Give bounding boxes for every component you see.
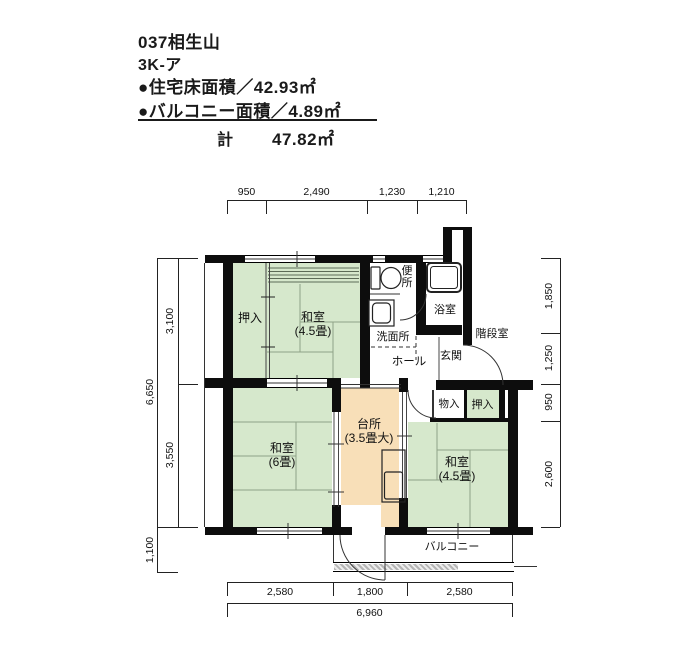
bath-bottom-wall <box>416 325 462 335</box>
header-underline <box>138 119 377 121</box>
dim-top-1210: 1,210 <box>417 186 466 198</box>
dim-top-line <box>227 200 466 201</box>
dim-left-tick-mid <box>178 384 198 385</box>
label-japanese-room-top-size: (4.5畳) <box>273 324 353 338</box>
tokonoma-stripe-band <box>268 265 359 283</box>
kitchen-right-wall-top <box>399 378 408 392</box>
dim-bottom-2580b: 2,580 <box>407 586 512 598</box>
dim-bottom-total-tick-2 <box>512 603 513 617</box>
dim-top-1230: 1,230 <box>367 186 417 198</box>
closet-row-bottom-wall <box>430 418 508 422</box>
label-japanese-room-6: 和室 (6畳) <box>252 441 312 470</box>
washbasin-icon <box>369 300 394 326</box>
balcony-railing-hatch <box>334 564 458 570</box>
label-toilet: 便所 <box>400 265 414 289</box>
label-storage: 物入 <box>434 398 464 411</box>
label-balcony: バルコニー <box>420 541 484 554</box>
dim-left-3550: 3,550 <box>163 433 177 477</box>
label-japanese-room-top-name: 和室 <box>273 310 353 324</box>
dim-bottom-line-2 <box>227 603 512 604</box>
fusuma-opening-middle <box>267 378 327 388</box>
dim-right-950: 950 <box>542 380 556 424</box>
entrance-door-arc <box>463 345 503 385</box>
dim-right-tick-2 <box>541 333 560 334</box>
wall-left-upper <box>223 263 233 378</box>
dim-left-tick-balcony <box>157 572 178 573</box>
closet-right-partition <box>499 390 505 418</box>
dim-bottom-line-1 <box>227 582 512 583</box>
toilet-tank-icon <box>371 267 380 289</box>
dim-right-2600: 2,600 <box>542 452 556 496</box>
dim-left-6650: 6,650 <box>143 370 157 414</box>
wall-bottom-4 <box>490 527 533 535</box>
label-kitchen: 台所 (3.5畳大) <box>334 417 404 446</box>
toilet-bowl-icon <box>381 268 401 289</box>
label-entrance: 玄関 <box>438 350 464 363</box>
dim-top-tick-2 <box>266 200 267 214</box>
label-closet-top: 押入 <box>233 311 267 325</box>
label-kitchen-size: (3.5畳大) <box>334 431 404 445</box>
window-top-1 <box>245 255 315 263</box>
plan-type: 3K-ア <box>138 51 182 75</box>
dim-top-2490: 2,490 <box>266 186 367 198</box>
dim-left-3100: 3,100 <box>163 299 177 343</box>
label-stairwell: 階段室 <box>468 328 516 341</box>
dim-left-tick-top <box>157 258 198 259</box>
floorplan-canvas: 037相生山 3K-ア ●住宅床面積／42.93㎡ ●バルコニー面積／4.89㎡… <box>0 0 700 650</box>
dim-right-1250: 1,250 <box>542 336 556 380</box>
dim-left-inner-line <box>178 258 179 527</box>
project-title: 037相生山 <box>138 28 220 53</box>
dim-bottom-2580a: 2,580 <box>227 586 333 598</box>
label-japanese-room-br-size: (4.5畳) <box>417 469 497 483</box>
dim-left-tick-bottom <box>157 527 198 528</box>
label-hall: ホール <box>384 356 434 370</box>
label-washroom: 洗面所 <box>369 331 417 344</box>
balcony-right-edge <box>512 535 513 563</box>
window-toilet <box>373 255 385 263</box>
toilet-left-wall <box>360 263 370 388</box>
dim-bottom-6960: 6,960 <box>227 607 512 619</box>
bathtub-inner-icon <box>431 267 458 289</box>
total-value: 47.82㎡ <box>272 125 335 150</box>
dim-top-950: 950 <box>227 186 266 198</box>
dim-bottom-tick-4 <box>512 582 513 596</box>
dim-right-line <box>560 258 561 527</box>
dim-bottom-1800: 1,800 <box>333 586 407 598</box>
dim-top-tick-4 <box>417 200 418 214</box>
wall-bottom-2 <box>322 527 352 535</box>
label-kitchen-name: 台所 <box>334 417 404 431</box>
label-japanese-room-br-name: 和室 <box>417 455 497 469</box>
total-label: 計 <box>217 126 234 150</box>
dim-top-tick-5 <box>466 200 467 214</box>
dim-right-tick-5 <box>541 527 560 528</box>
kitchen-left-wall-top <box>332 378 341 412</box>
duct-shaft-left-wall <box>443 227 452 263</box>
balcony-left-edge <box>333 535 334 563</box>
wall-top-2 <box>315 255 373 263</box>
label-closet-right: 押入 <box>467 399 498 412</box>
window-bath <box>423 255 443 263</box>
balcony-door-arc <box>340 535 385 580</box>
wall-right-lower <box>508 388 518 535</box>
wall-bottom-3 <box>385 527 427 535</box>
kitchen-door-threshold <box>341 505 381 527</box>
dim-left-outer-line <box>157 258 158 573</box>
dim-top-tick-1 <box>227 200 228 214</box>
dim-right-tick-1 <box>541 258 560 259</box>
label-japanese-room-br: 和室 (4.5畳) <box>417 455 497 484</box>
wall-top-1 <box>205 255 245 263</box>
floor-area-line: ●住宅床面積／42.93㎡ <box>138 73 316 98</box>
window-bottom-2 <box>427 527 490 535</box>
dim-right-1850: 1,850 <box>542 274 556 318</box>
label-japanese-room-top: 和室 (4.5畳) <box>273 310 353 339</box>
duct-shaft-top-wall <box>443 227 472 230</box>
dim-left-1100: 1,100 <box>143 528 157 572</box>
dim-top-tick-3 <box>367 200 368 214</box>
bathtub-icon <box>427 263 461 292</box>
wall-middle-right <box>436 380 533 390</box>
washbasin-bowl-icon <box>373 303 391 323</box>
wall-left-outer-face-line <box>204 263 205 527</box>
balcony-extension-line <box>514 566 537 567</box>
label-japanese-room-6-name: 和室 <box>252 441 312 455</box>
label-japanese-room-6-size: (6畳) <box>252 455 312 469</box>
window-bottom-1 <box>257 527 322 535</box>
label-bath: 浴室 <box>427 304 463 317</box>
wall-bottom-1 <box>205 527 257 535</box>
wall-left-lower <box>223 388 233 527</box>
wall-middle-left-a <box>205 378 267 388</box>
